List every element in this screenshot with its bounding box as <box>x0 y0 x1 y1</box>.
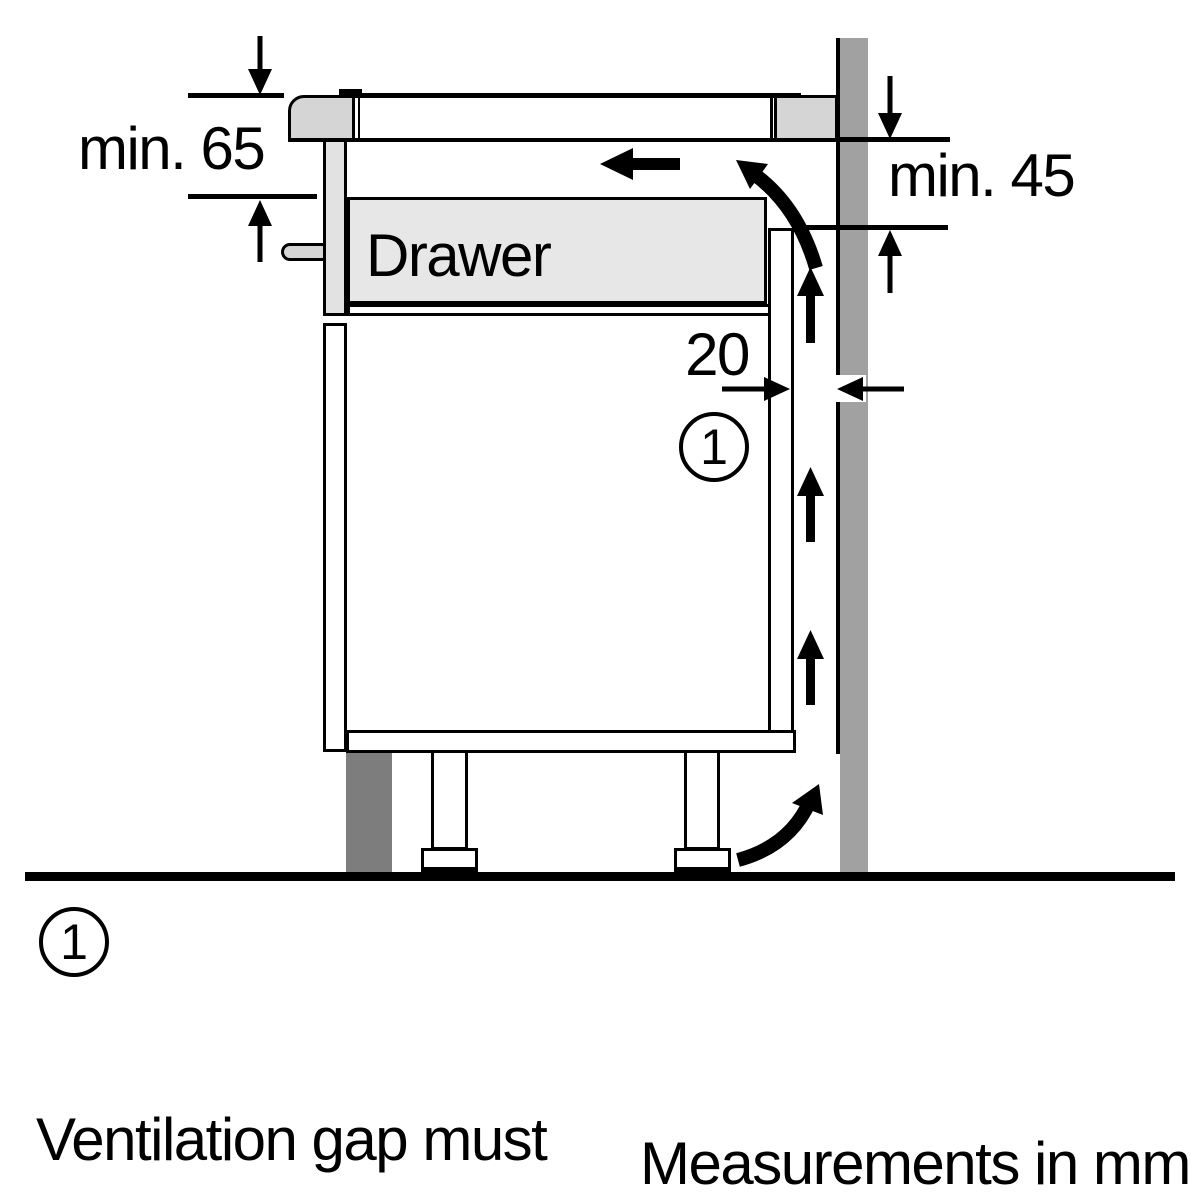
dim-20-label: 20 <box>679 324 755 386</box>
right-leg-foot <box>674 848 731 875</box>
airflow-left-arrow <box>600 148 680 180</box>
airflow-up-arrow-2 <box>797 467 824 542</box>
airflow-up-arrow-1 <box>797 267 824 343</box>
wall-arrow-notch <box>835 375 866 402</box>
legend-text-line1: Ventilation gap must <box>36 1109 546 1171</box>
cabinet-bottom-board <box>346 730 796 753</box>
cabinet-back-panel <box>768 228 794 730</box>
left-leg-stem <box>431 750 468 850</box>
hob-glass-top <box>339 93 801 98</box>
dim-45-down-arrow <box>878 76 902 139</box>
plinth <box>346 752 392 872</box>
dim-65-up-arrow <box>248 200 272 262</box>
dim-45-label: min. 45 <box>888 145 1074 207</box>
dim-65-down-arrow <box>248 36 272 95</box>
legend-text: Ventilation gap must be present. <box>36 985 546 1200</box>
worktop-front-edge <box>288 95 355 142</box>
worktop-underside-line <box>288 138 838 142</box>
dim-65-lower-line <box>188 194 317 199</box>
hob-cutout-front-line-a <box>352 97 354 139</box>
drawer-rail <box>347 304 771 316</box>
wall <box>840 38 868 872</box>
hob-cutout-front-line-b <box>358 97 360 139</box>
units-note: Measurements in mm <box>640 1133 1190 1195</box>
legend-1-badge: 1 <box>39 907 109 977</box>
dim-65-label: min. 65 <box>78 118 264 180</box>
legend-1-number: 1 <box>60 913 88 971</box>
dim-65-upper-line <box>188 93 284 98</box>
drawer-front-panel <box>323 139 347 316</box>
drawer-label: Drawer <box>366 225 550 287</box>
floor-line <box>25 872 1175 881</box>
drawer-handle <box>281 243 326 261</box>
cabinet-door-panel <box>323 323 347 752</box>
airflow-up-arrow-3 <box>797 630 824 705</box>
airflow-curved-arrow-bottom <box>738 784 823 860</box>
hob-cutout-rear-line <box>770 97 773 139</box>
dim-45-lower-line <box>800 225 948 230</box>
installation-diagram: Drawer min. 65 min. 45 20 1 <box>0 0 1200 1200</box>
callout-1-badge: 1 <box>679 412 749 482</box>
dim-45-up-arrow <box>878 230 902 293</box>
left-leg-foot <box>421 848 478 875</box>
worktop-rear-edge <box>774 95 838 142</box>
callout-1-number: 1 <box>700 418 728 476</box>
right-leg-stem <box>684 750 720 850</box>
